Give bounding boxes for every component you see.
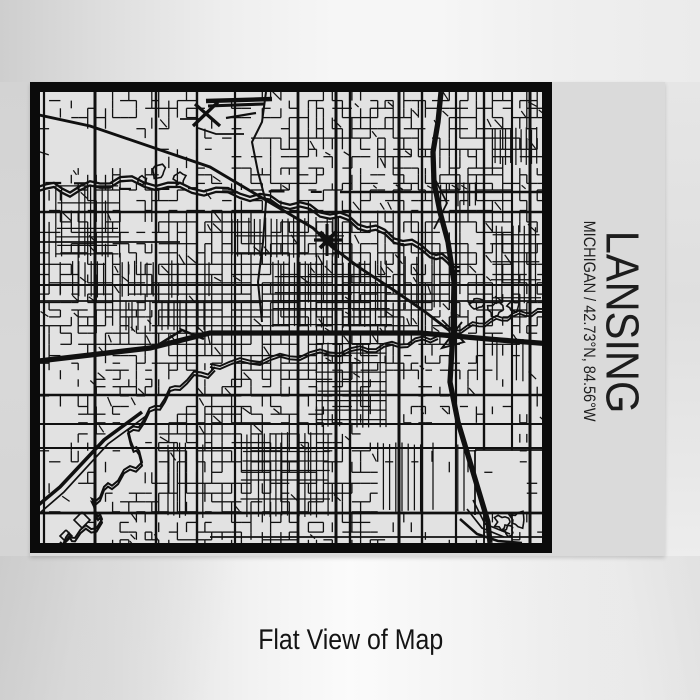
svg-text:LANSING: LANSING — [596, 231, 648, 413]
svg-text:Flat View of Map: Flat View of Map — [258, 624, 443, 656]
svg-text:MICHIGAN / 42.73°N, 84.56°W: MICHIGAN / 42.73°N, 84.56°W — [580, 221, 599, 422]
